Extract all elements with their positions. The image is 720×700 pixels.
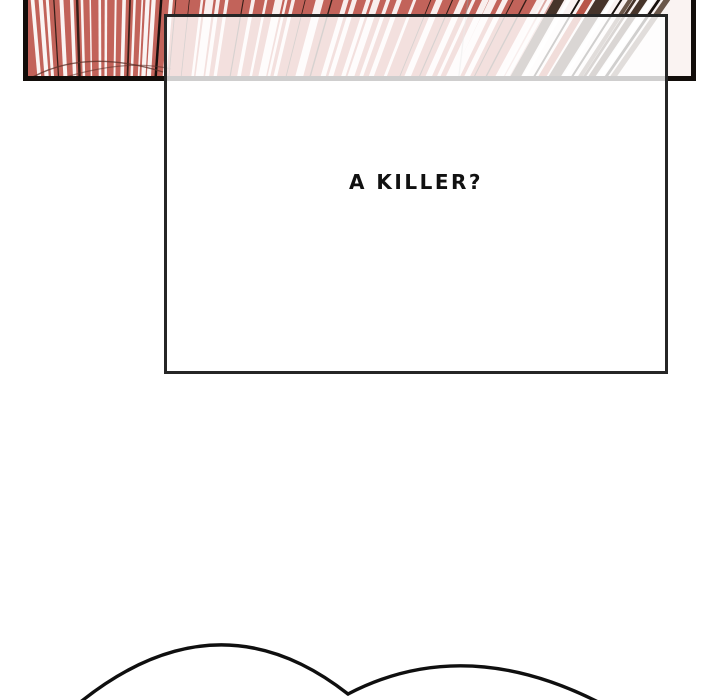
caption-box: A KILLER? xyxy=(164,14,668,374)
thought-bubble-top xyxy=(0,620,720,700)
comic-page: A KILLER? xyxy=(0,0,720,700)
caption-text: A KILLER? xyxy=(167,170,665,194)
